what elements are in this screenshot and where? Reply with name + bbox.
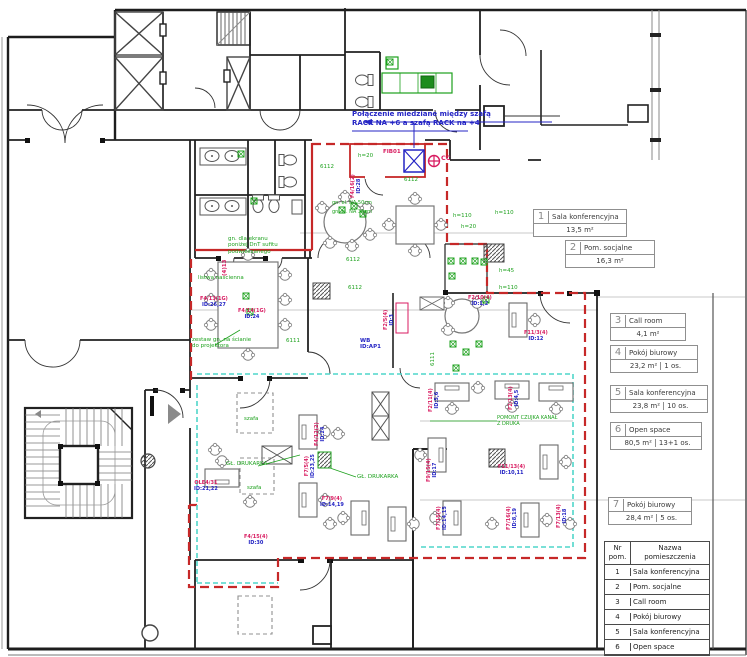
desk-circuit-label: F4/16(2)ID:28 — [350, 174, 362, 198]
desk-circuit-label: F4/15(4)ID:30 — [244, 534, 268, 546]
desk-circuit-label: F7/5(4)ID:23,25 — [304, 454, 316, 478]
height-label: h=110 — [499, 285, 518, 291]
fiber-label: FIB01 — [383, 149, 401, 155]
room-label-7: 7Pokój biurowy 28,4 m²5 os. — [608, 497, 692, 525]
table-row: 6Open space — [605, 640, 709, 655]
desk-circuit-label: OLE4/31ID:21,22 — [194, 480, 218, 492]
desk-circuit-label: F11/3(4)ID:12 — [524, 330, 548, 342]
table-header-nr: Nr pom. — [605, 542, 631, 564]
table-row: 2Pom. socjalne — [605, 580, 709, 595]
sensor-note: POMONT CZUJKA KANAŁZ DRUKA — [497, 416, 557, 428]
desk-circuit-label: F4/14(1G)ID:24 — [238, 308, 266, 320]
printer-label: GŁ. DRUKARKA — [226, 461, 267, 467]
desk-circuit-label: F2/10(4)ID:1,2 — [468, 295, 492, 307]
room-label-1: 1Sala konferencyjna 13,5 m² — [533, 209, 627, 237]
rack-cabinet-icon — [404, 150, 440, 172]
room-label-3: 3Call room 4,1 m² — [610, 313, 686, 341]
circuit-label: 6111 — [286, 338, 300, 344]
desk-circuit-label: F9/15(4)ID:17 — [426, 458, 438, 482]
table-room2 — [382, 192, 447, 256]
desk-circuit-label: F4/13(1G)ID:26,27 — [200, 296, 228, 308]
circuit-label: 6112 — [320, 164, 334, 170]
circuit-label: 6112 — [404, 177, 418, 183]
cc-label: CC — [441, 155, 451, 162]
desk-circuit-label: F11/13(4)ID:10,11 — [498, 464, 525, 476]
height-label: h=20 — [461, 224, 476, 230]
desk-circuit-label: F2/5(4)ID:3 — [383, 310, 395, 330]
height-label: h=45 — [499, 268, 514, 274]
planned-cabinets — [237, 393, 274, 634]
column-square — [313, 626, 331, 644]
room-legend-table: Nr pom. Nazwa pomieszczenia 1Sala konfer… — [604, 541, 710, 656]
circuit-label-red: (4)13 — [222, 259, 228, 276]
table-row: 1Sala konferencyjna — [605, 565, 709, 580]
circuit-label: 6112 — [348, 285, 362, 291]
desk-circuit-label: F7/13(4)ID:18 — [556, 504, 568, 528]
window-band — [628, 10, 661, 160]
socket-height-note: gn. el. NA 50cm — [332, 201, 372, 207]
kitchen-counter — [356, 57, 453, 108]
circuit-label: 6111 — [430, 352, 436, 366]
table-header-name: Nazwa pomieszczenia — [631, 542, 709, 564]
wall-strip-note: listwa naścienna — [198, 275, 244, 281]
desk-circuit-label: F2/13(4)ID:4,5 — [508, 386, 520, 410]
circuit-label: 6112 — [346, 257, 360, 263]
direction-arrow — [168, 404, 181, 424]
table-row: 3Call room — [605, 595, 709, 610]
stairs-top-icon — [217, 12, 250, 45]
access-point-label: WBID:AP1 — [360, 338, 381, 351]
column-hatched — [141, 454, 155, 468]
call-room-desk — [396, 297, 444, 333]
elevator-icon — [115, 12, 250, 110]
table-row: 4Pokój biurowy — [605, 610, 709, 625]
desk-circuit-label: F7/9(4)ID:14,19 — [320, 496, 344, 508]
height-label: h=110 — [495, 210, 514, 216]
room-label-4: 4Pokój biurowy 23,2 m²1 os. — [610, 345, 698, 373]
projector-socket-note: zestaw gn. na ścianiedo projektora — [192, 337, 251, 350]
desk-circuit-label: F7/16(4)ID:8,19 — [506, 506, 518, 530]
cabinet-label: szafa — [244, 416, 258, 422]
desk-circuit-label: F2/11(4)ID:5,6 — [428, 388, 440, 412]
desk-circuit-label: F4/12(2)ID:24 — [314, 422, 326, 446]
table-row: 5Sala konferencyjna — [605, 625, 709, 640]
height-label: h=110 — [453, 213, 472, 219]
room-label-6: 6Open space 80,5 m²13+1 os. — [610, 422, 702, 450]
screen-socket-note: gn. dla ekranuponiżej DnT sufitupodwiesz… — [228, 236, 278, 255]
floor-plan: Połączenie miedziane między szafą RACK N… — [0, 0, 747, 657]
staircase — [25, 408, 132, 518]
cabinet-label: szafa — [247, 485, 261, 491]
height-label: h=20 — [358, 153, 373, 159]
room-label-5: 5Sala konferencyjna 23,8 m²10 os. — [610, 385, 708, 413]
printer-label: GŁ. DRUKARKA — [357, 474, 398, 480]
column-round — [142, 625, 158, 641]
socket-height-note: gn. el. NA 30cm — [332, 210, 372, 216]
toilet-fixtures — [200, 148, 302, 215]
room-label-2: 2Pom. socjalne 16,3 m² — [565, 240, 655, 268]
rack-connection-note: Połączenie miedziane między szafą RACK N… — [352, 110, 491, 128]
desk-circuit-label: F7/15(4)ID:14,15 — [436, 506, 448, 530]
